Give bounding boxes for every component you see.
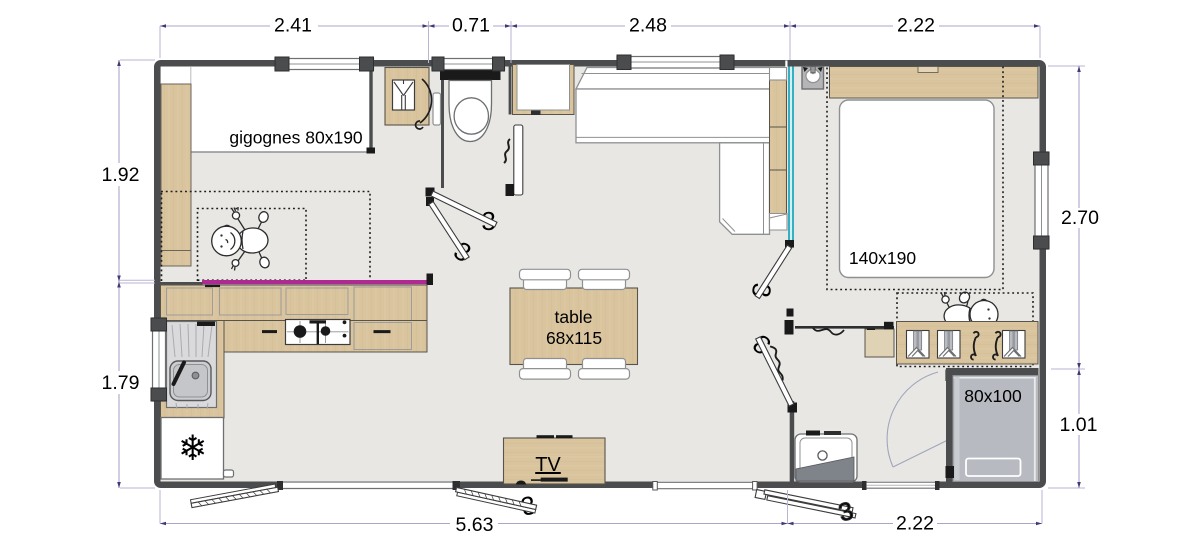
svg-text:80x100: 80x100 [964, 386, 1022, 406]
svg-text:TV: TV [535, 454, 561, 476]
svg-text:2.41: 2.41 [274, 15, 312, 37]
svg-text:1.92: 1.92 [102, 164, 140, 186]
svg-text:gigognes 80x190: gigognes 80x190 [229, 127, 363, 147]
svg-text:1.01: 1.01 [1060, 414, 1098, 436]
svg-text:0.71: 0.71 [452, 15, 490, 37]
svg-text:140x190: 140x190 [849, 248, 916, 268]
svg-text:table: table [555, 307, 593, 327]
svg-text:68x115: 68x115 [546, 328, 602, 348]
svg-text:2.48: 2.48 [629, 15, 667, 37]
svg-text:2.22: 2.22 [897, 15, 935, 37]
svg-text:2.22: 2.22 [896, 513, 934, 535]
svg-text:2.70: 2.70 [1061, 207, 1099, 229]
svg-text:1.79: 1.79 [102, 372, 140, 394]
svg-text:5.63: 5.63 [456, 514, 494, 536]
svg-text:❄: ❄ [178, 429, 207, 468]
